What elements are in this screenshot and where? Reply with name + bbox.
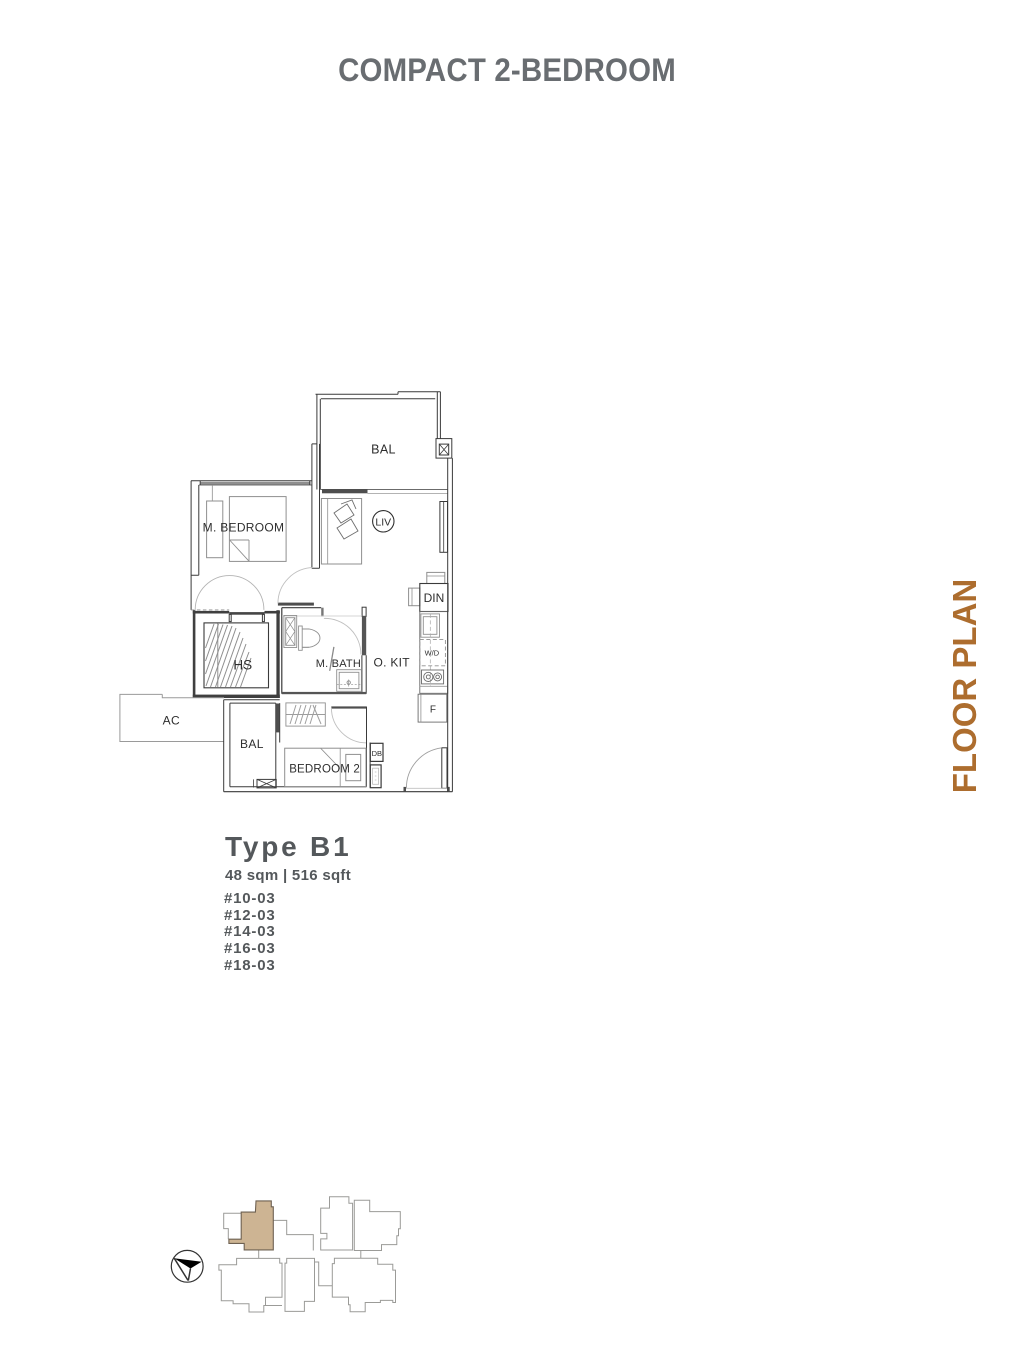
svg-text:BAL: BAL xyxy=(371,443,396,457)
svg-text:BAL: BAL xyxy=(240,737,264,751)
svg-text:W/D: W/D xyxy=(425,649,440,658)
svg-text:DB: DB xyxy=(372,749,382,758)
svg-text:HS: HS xyxy=(233,657,252,672)
svg-text:DIN: DIN xyxy=(424,591,445,605)
svg-text:F: F xyxy=(430,704,436,715)
svg-text:O. KIT: O. KIT xyxy=(373,655,410,669)
svg-text:LIV: LIV xyxy=(375,516,391,528)
svg-text:BEDROOM 2: BEDROOM 2 xyxy=(289,764,360,776)
svg-text:M. BEDROOM: M. BEDROOM xyxy=(203,521,285,535)
svg-text:AC: AC xyxy=(163,714,180,728)
svg-text:M. BATH: M. BATH xyxy=(316,658,361,670)
